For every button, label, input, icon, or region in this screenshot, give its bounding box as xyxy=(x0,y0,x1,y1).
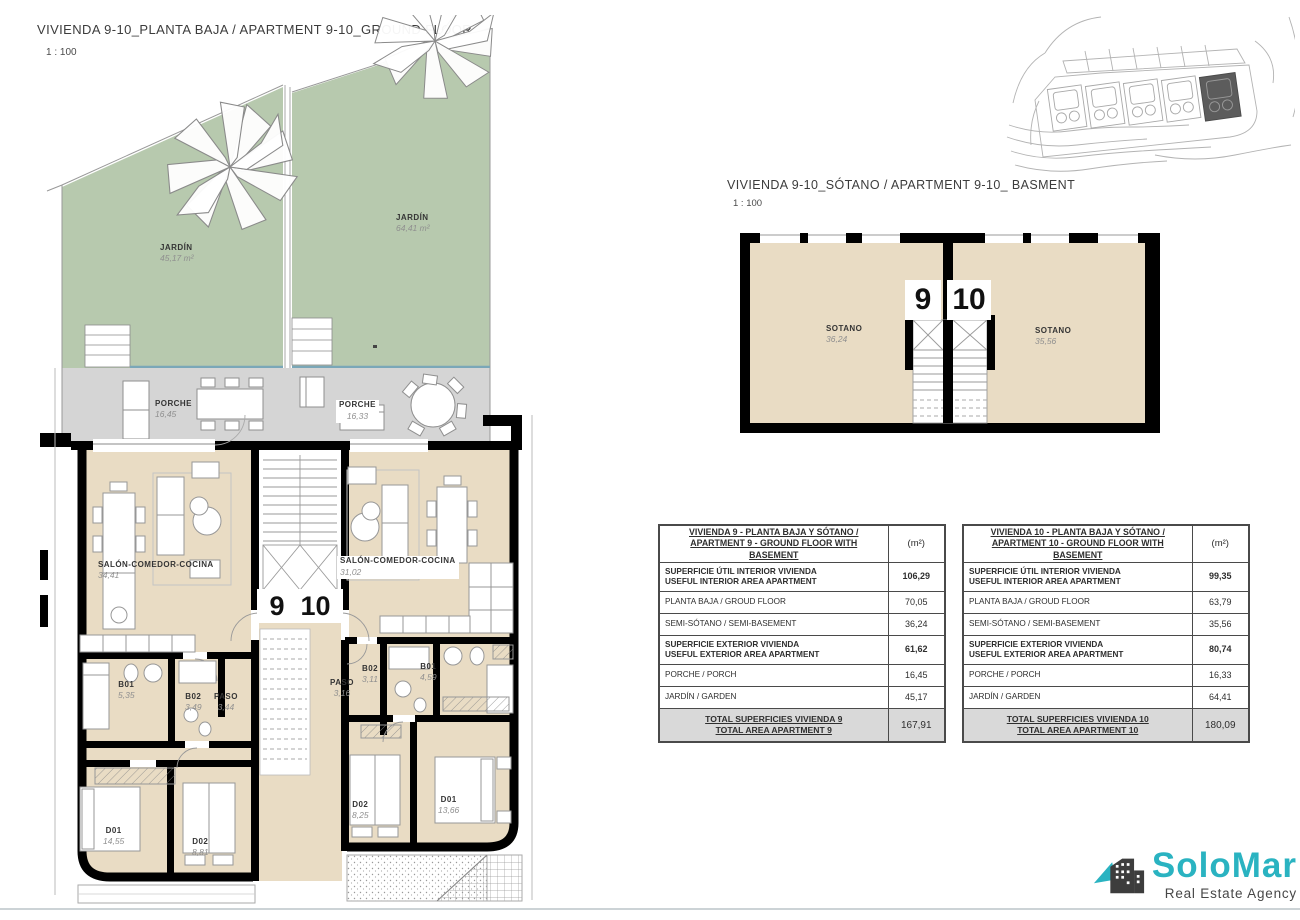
area-table-apartment-10: VIVIENDA 10 - PLANTA BAJA Y SÓTANO / APA… xyxy=(962,524,1250,743)
highlighted-unit xyxy=(1199,73,1241,122)
table-row: JARDÍN / GARDEN 45,17 xyxy=(659,687,945,709)
room-label-b02-right: B02 3,11 xyxy=(362,664,378,685)
table-row: PORCHE / PORCH 16,33 xyxy=(963,665,1249,687)
room-label-salon-left: SALÓN-COMEDOR-COCINA 34,41 xyxy=(98,560,214,581)
room-label-d02-right: D02 8,25 xyxy=(352,800,369,821)
table-row: SEMI-SÓTANO / SEMI-BASEMENT 36,24 xyxy=(659,614,945,636)
table-row: JARDÍN / GARDEN 64,41 xyxy=(963,687,1249,709)
room-label-d01-right: D01 13,66 xyxy=(438,795,459,816)
table-row: PORCHE / PORCH 16,45 xyxy=(659,665,945,687)
room-label-jardin-right: JARDÍN 64,41 m² xyxy=(396,213,430,234)
brand-name: SoloMar xyxy=(1152,848,1297,885)
table-row: PLANTA BAJA / GROUD FLOOR 63,79 xyxy=(963,592,1249,614)
table-header-row: VIVIENDA 10 - PLANTA BAJA Y SÓTANO / APA… xyxy=(963,525,1249,563)
table-total-row: TOTAL SUPERFICIES VIVIENDA 10 TOTAL AREA… xyxy=(963,709,1249,743)
table-row: PLANTA BAJA / GROUD FLOOR 70,05 xyxy=(659,592,945,614)
basement-number-10: 10 xyxy=(947,280,991,320)
table-row: SUPERFICIE ÚTIL INTERIOR VIVIENDA USEFUL… xyxy=(659,563,945,592)
garden-areas xyxy=(47,28,490,368)
room-label-b01-right: B01 4,59 xyxy=(420,662,437,683)
ground-unit-numbers: 9 10 xyxy=(257,589,343,623)
drawing-sheet: VIVIENDA 9-10_PLANTA BAJA / APARTMENT 9-… xyxy=(0,0,1300,920)
solomar-building-icon xyxy=(1093,848,1146,902)
table-row: SEMI-SÓTANO / SEMI-BASEMENT 35,56 xyxy=(963,614,1249,636)
table-row: SUPERFICIE EXTERIOR VIVIENDA USEFUL EXTE… xyxy=(963,636,1249,665)
site-location-map xyxy=(1005,5,1295,177)
unit-number-10: 10 xyxy=(300,593,330,620)
basement-title: VIVIENDA 9-10_SÓTANO / APARTMENT 9-10_ B… xyxy=(727,178,1075,192)
room-label-porche-left: PORCHE 16,45 xyxy=(155,399,192,420)
solomar-logo: SoloMar Real Estate Agency xyxy=(1093,848,1297,914)
table-row: SUPERFICIE ÚTIL INTERIOR VIVIENDA USEFUL… xyxy=(963,563,1249,592)
room-label-jardin-left: JARDÍN 45,17 m² xyxy=(160,243,194,264)
room-label-d01-left: D01 14,55 xyxy=(103,826,124,847)
unit-header: (m²) xyxy=(888,525,945,563)
basement-number-9: 9 xyxy=(905,280,941,320)
room-label-sotano-left: SOTANO 36,24 xyxy=(826,324,862,345)
unit-header: (m²) xyxy=(1192,525,1249,563)
area-table-apartment-9: VIVIENDA 9 - PLANTA BAJA Y SÓTANO / APAR… xyxy=(658,524,946,743)
ground-floor-plan xyxy=(35,15,587,915)
room-label-b02-left: B02 3,49 xyxy=(185,692,202,713)
room-label-paso-left: PASO 3,44 xyxy=(214,692,238,713)
basement-plan xyxy=(735,225,1165,440)
brand-tagline: Real Estate Agency xyxy=(1165,886,1297,901)
room-label-salon-right: SALÓN-COMEDOR-COCINA 31,02 xyxy=(337,556,459,579)
room-label-b01-left: B01 5,35 xyxy=(118,680,135,701)
room-label-porche-right: PORCHE 16,33 xyxy=(336,400,379,423)
table-row: SUPERFICIE EXTERIOR VIVIENDA USEFUL EXTE… xyxy=(659,636,945,665)
unit-number-9: 9 xyxy=(269,593,284,620)
site-units xyxy=(1047,73,1241,132)
room-label-d02-left: D02 8,81 xyxy=(192,837,209,858)
room-label-paso-right: PASO 3,16 xyxy=(330,678,354,699)
table-total-row: TOTAL SUPERFICIES VIVIENDA 9 TOTAL AREA … xyxy=(659,709,945,743)
table-header-row: VIVIENDA 9 - PLANTA BAJA Y SÓTANO / APAR… xyxy=(659,525,945,563)
room-label-sotano-right: SOTANO 35,56 xyxy=(1035,326,1071,347)
basement-scale: 1 : 100 xyxy=(733,198,762,209)
